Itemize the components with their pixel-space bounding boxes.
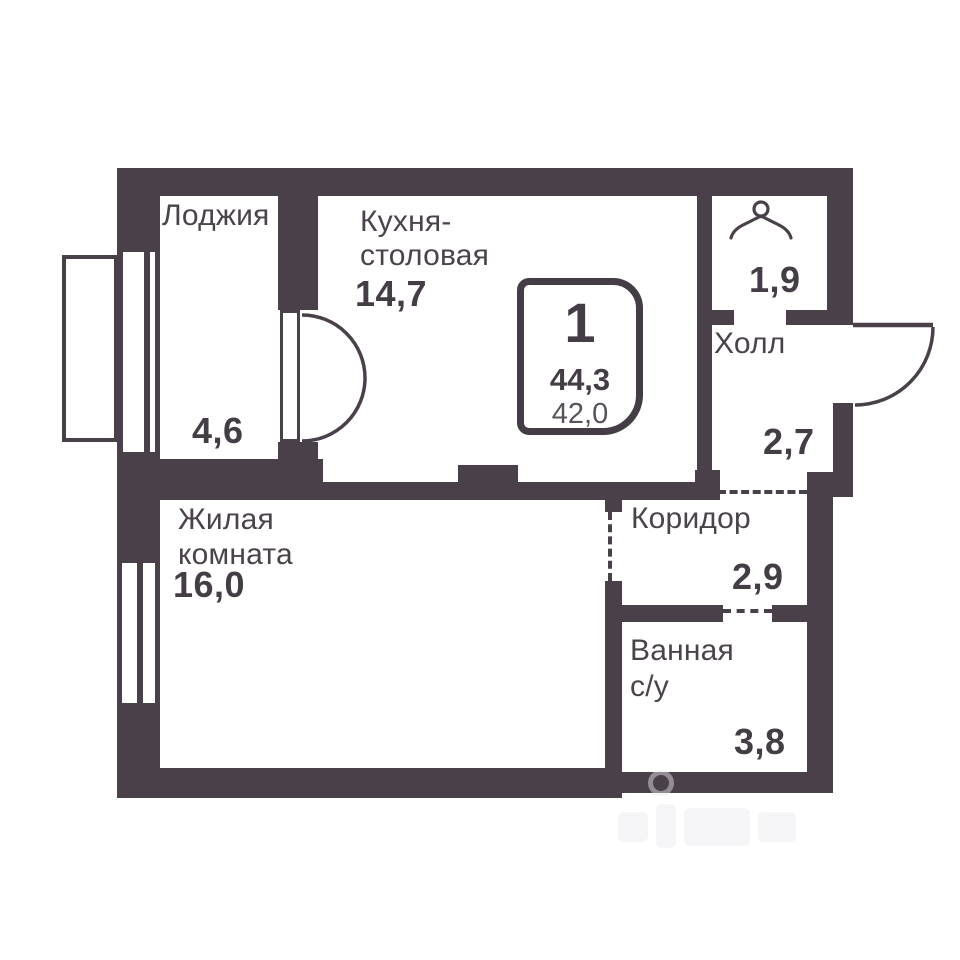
window-loggia-line (117, 252, 123, 452)
room-label-living-room: Жилая комната (178, 502, 293, 572)
wall-segment (697, 196, 712, 470)
window-loggia (117, 252, 160, 452)
room-area-kitchen: 14,7 (355, 276, 427, 312)
room-area-wardrobe: 1,9 (749, 262, 801, 298)
opening-dashed-line (723, 609, 772, 613)
watermark-shape (618, 812, 648, 842)
wall-segment (117, 168, 853, 196)
watermark-shape (656, 804, 676, 848)
room-area-living-room: 16,0 (173, 567, 245, 603)
watermark-shape (758, 812, 796, 842)
room-label-kitchen-line2: столовая (360, 239, 489, 273)
wall-segment (827, 196, 853, 325)
entrance-door-swing (851, 318, 941, 410)
room-label-bathroom-line2: с/у (630, 669, 734, 705)
wall-segment (807, 497, 833, 793)
wall-segment (807, 472, 853, 497)
wall-segment (786, 310, 827, 325)
room-label-loggia: Лоджия (162, 199, 270, 233)
room-label-corridor: Коридор (631, 502, 751, 536)
balcony-double-door-swing (296, 308, 380, 448)
window-loggia-line (144, 252, 150, 452)
wall-segment (712, 310, 734, 325)
room-area-corridor: 2,9 (732, 559, 784, 595)
room-label-kitchen-line1: Кухня- (360, 205, 489, 239)
wall-segment (833, 403, 853, 472)
wall-segment (605, 497, 622, 512)
room-label-hall: Холл (714, 327, 786, 361)
wall-segment (323, 482, 720, 500)
room-area-loggia: 4,6 (192, 413, 244, 449)
floor-plan: Лоджия 4,6 Кухня- столовая 14,7 1,9 Холл… (0, 0, 960, 960)
room-label-living-line1: Жилая (178, 502, 293, 537)
wall-segment (695, 470, 720, 500)
wall-segment (278, 196, 318, 310)
window-living-line (137, 563, 143, 703)
apartment-summary-badge: 1 44,3 42,0 (517, 278, 643, 435)
watermark-shape (684, 808, 750, 846)
wall-segment (117, 768, 622, 798)
window-loggia-line (155, 252, 160, 452)
window-living-line (155, 563, 160, 703)
badge-living-area: 42,0 (552, 398, 608, 431)
wall-segment (772, 605, 807, 622)
badge-room-count: 1 (564, 295, 595, 351)
wall-segment (117, 500, 160, 563)
wall-segment (117, 196, 160, 252)
room-label-kitchen: Кухня- столовая (360, 205, 489, 273)
room-label-bathroom-line1: Ванная (630, 633, 734, 669)
room-area-bathroom: 3,8 (734, 724, 786, 760)
room-label-bathroom: Ванная с/у (630, 633, 734, 705)
wall-segment (278, 442, 318, 500)
opening-dashed-line (608, 512, 612, 581)
wall-segment (458, 465, 518, 482)
watermark-ring (648, 770, 674, 796)
hanger-icon (729, 198, 793, 246)
watermark (608, 764, 828, 864)
balcony-parapet-outline (62, 255, 118, 442)
window-living-line (117, 563, 122, 703)
badge-total-area: 44,3 (550, 362, 610, 398)
opening-dashed-line (718, 490, 807, 494)
room-area-hall: 2,7 (763, 424, 815, 460)
wall-segment (622, 605, 723, 622)
